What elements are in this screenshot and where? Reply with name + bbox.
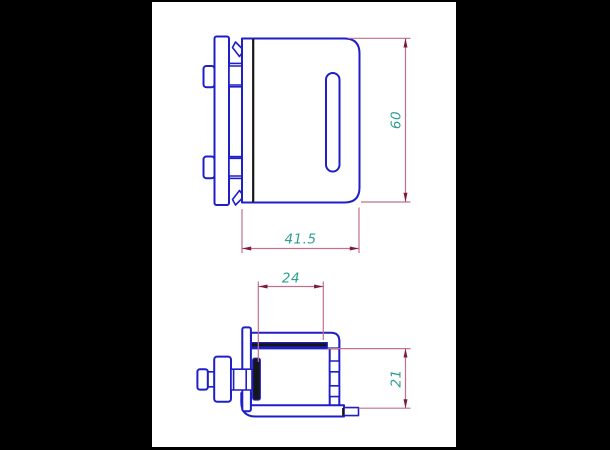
side-section-bar — [252, 343, 328, 347]
front-screw-head-bottom — [204, 157, 215, 179]
side-clamp-pad — [253, 358, 261, 400]
front-body — [242, 39, 360, 203]
front-view — [204, 37, 360, 206]
front-screw-shaft-top — [229, 66, 242, 85]
side-foot-toe — [344, 408, 359, 416]
front-clamp-plate — [215, 37, 230, 206]
dimension-text-height: 60 — [389, 111, 405, 129]
cad-drawing: 60 41.5 — [0, 0, 610, 450]
dimension-text-width: 41.5 — [284, 232, 316, 248]
side-leg-hole-top — [330, 361, 340, 372]
front-screw-head-top — [204, 66, 215, 87]
side-bolt-head — [197, 369, 207, 389]
dimension-text-depth: 24 — [282, 271, 300, 287]
front-screw-shaft-bottom — [229, 158, 242, 176]
side-bolt-washer — [214, 357, 231, 402]
front-slot — [326, 73, 340, 172]
side-leg-hole-bottom — [330, 386, 340, 397]
dimension-text-leg-height: 21 — [389, 369, 405, 387]
